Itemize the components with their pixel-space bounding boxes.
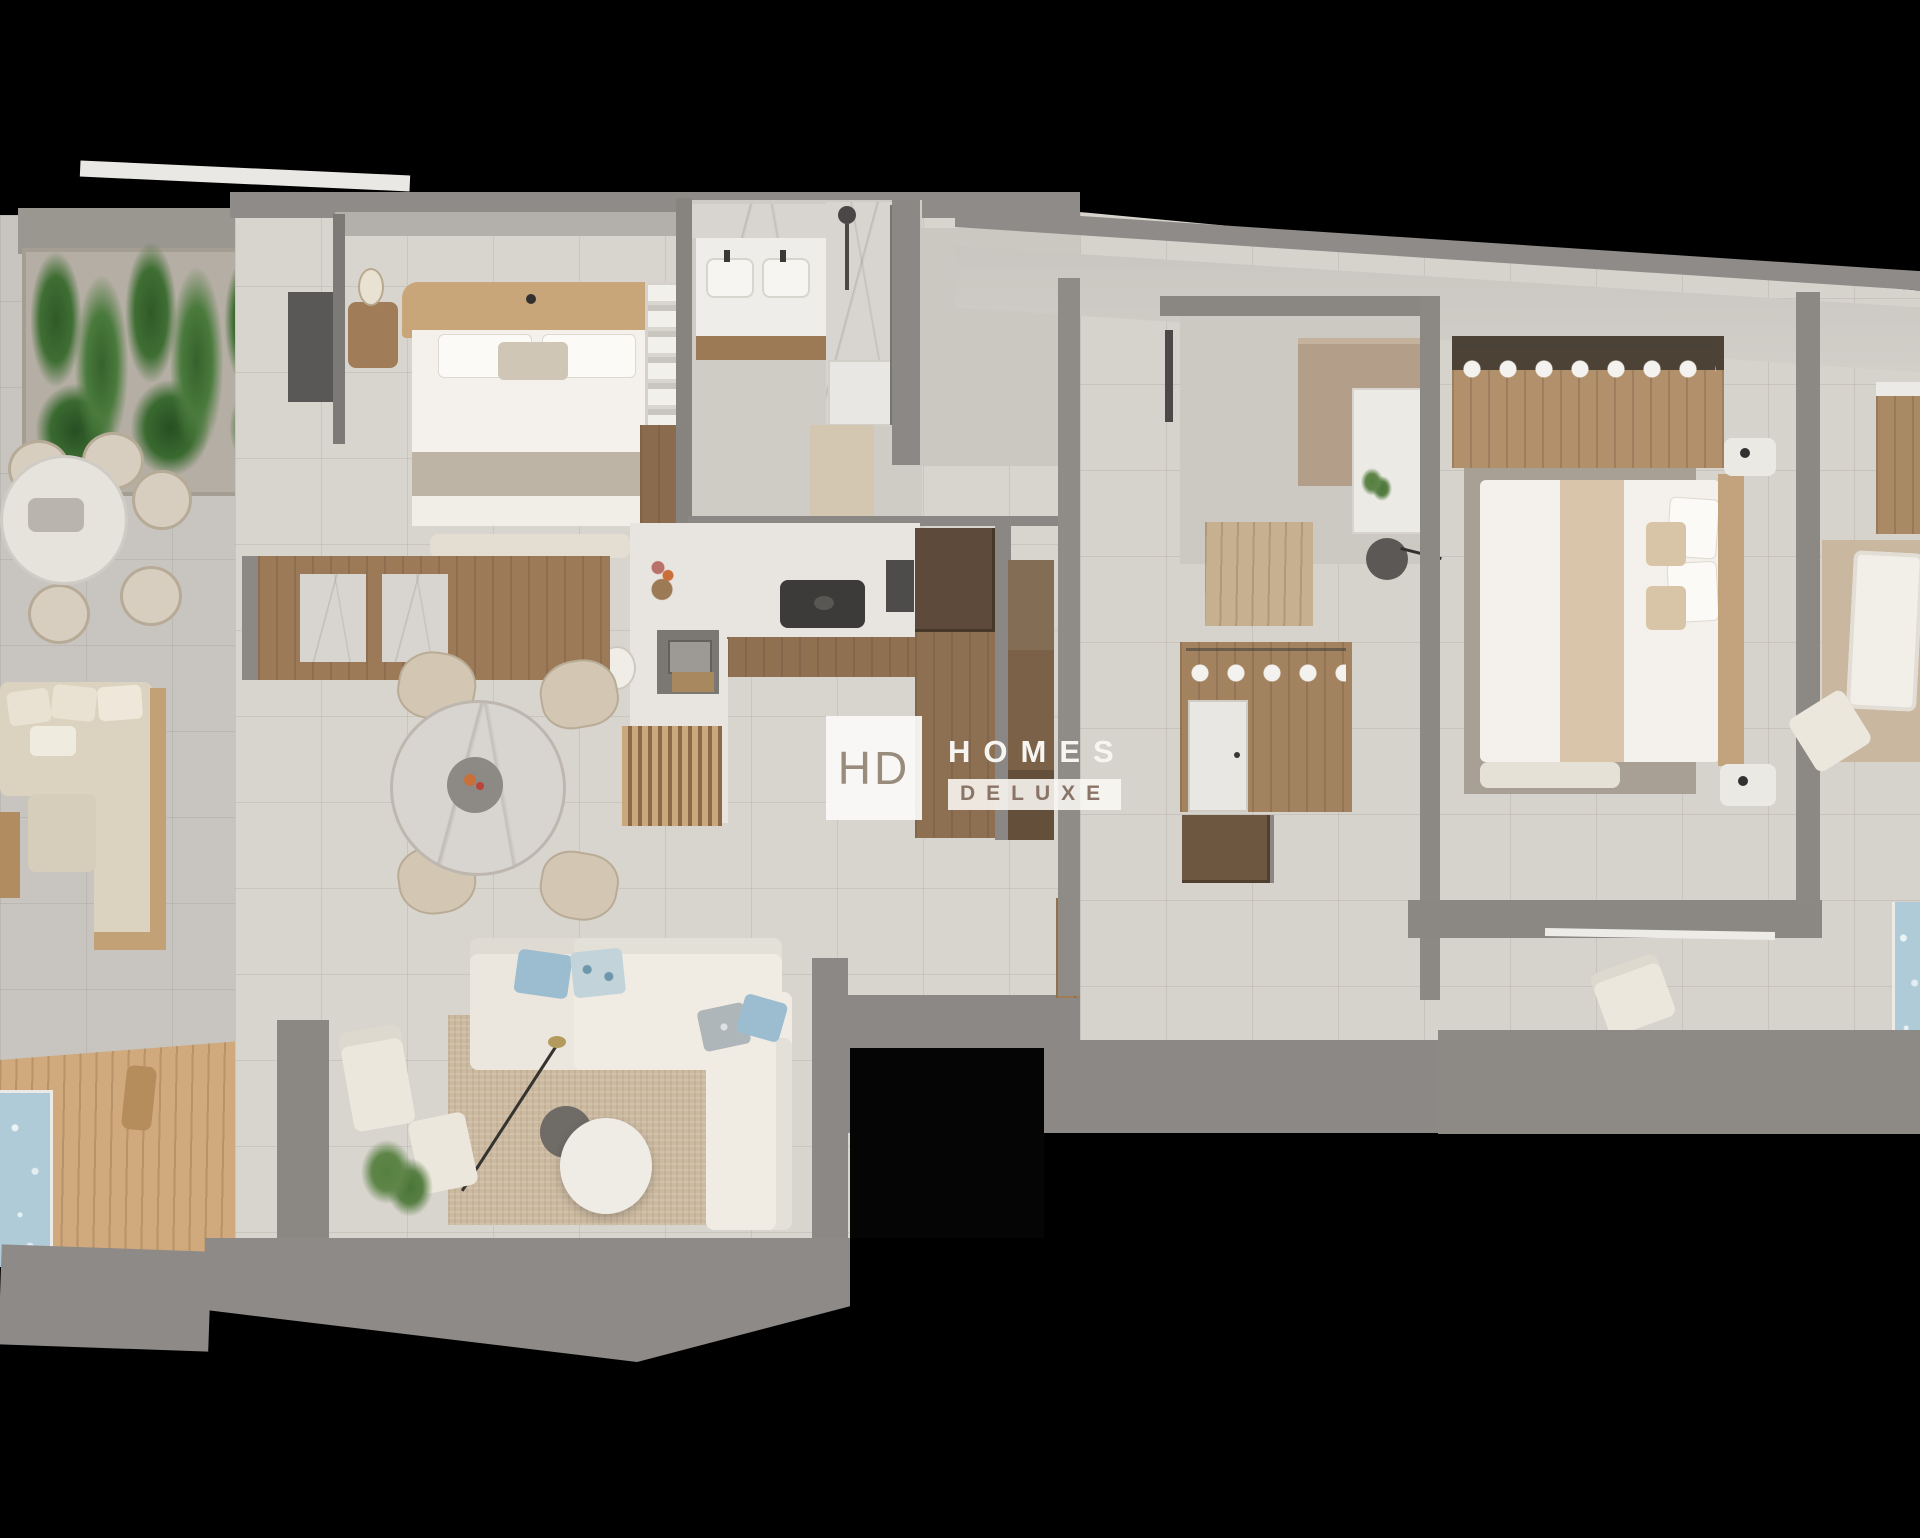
north-wall-face xyxy=(335,212,680,236)
logo-monogram-badge: HD xyxy=(826,716,922,820)
logo-monogram: HD xyxy=(838,741,910,795)
floor-lamp-shade xyxy=(548,1036,566,1048)
sideboard-art-2 xyxy=(382,574,448,662)
island-slat-front xyxy=(622,726,722,826)
bathroom1-backsplash xyxy=(692,204,826,238)
watermark-logo: HD HOMES DELUXE xyxy=(826,716,1127,820)
outdoor-cabinet-top xyxy=(1876,382,1920,396)
bed2-cushion-1 xyxy=(1646,522,1686,566)
porch-west-wall xyxy=(812,958,848,1238)
outdoor-sofa-chaise xyxy=(28,794,96,872)
floorplan-render: HD HOMES DELUXE xyxy=(0,0,1920,1538)
terrace2-daybed xyxy=(1846,550,1920,711)
south-wall-wedge xyxy=(0,1244,212,1351)
outdoor-table-tray xyxy=(28,498,84,532)
dining-table-center xyxy=(447,757,503,813)
south-wall-band xyxy=(205,1238,850,1362)
bath2-door-jamb-1 xyxy=(1165,330,1173,422)
sofa-pillow-blue xyxy=(513,948,573,999)
vanity-plant xyxy=(1356,462,1396,506)
bed2-lamp-2 xyxy=(1738,776,1748,786)
outdoor-chair-4 xyxy=(120,566,182,626)
vanity-wood-base xyxy=(696,336,826,360)
coffee-machine xyxy=(886,560,914,612)
bed2-throw xyxy=(1560,480,1624,762)
counter-vase-flowers xyxy=(642,552,682,604)
bed1-blanket xyxy=(412,452,654,496)
closet-hanging-clothes xyxy=(1186,648,1346,703)
outdoor-cabinet xyxy=(1876,388,1920,534)
kitchen-wood-cabinets xyxy=(727,637,917,677)
pool xyxy=(0,1090,53,1267)
coffee-table xyxy=(560,1118,652,1214)
outdoor-sofa-wood-trim xyxy=(150,688,166,950)
vanity-faucet-right xyxy=(780,250,786,262)
bathroom2-wood-floor xyxy=(1205,522,1313,626)
logo-line2: DELUXE xyxy=(948,779,1121,810)
closet-door-handle xyxy=(1234,752,1240,758)
table-lamp xyxy=(358,268,384,306)
closet-storage-boxes xyxy=(1182,815,1274,883)
shower-pipe xyxy=(845,224,849,290)
shower-tray xyxy=(828,360,892,426)
outdoor-chair-5 xyxy=(28,584,90,644)
bath-runner-rug xyxy=(810,425,874,530)
outdoor-sofa-pillow-2 xyxy=(50,684,97,722)
sofa-pillow-pattern xyxy=(570,947,627,998)
outdoor-chair-3 xyxy=(132,470,192,530)
outdoor-sofa-wood-base xyxy=(94,932,166,950)
bedroom2-hanging-clothes xyxy=(1458,344,1716,403)
logo-wordmark: HOMES DELUXE xyxy=(948,716,1127,810)
pendant-lamp-bed1 xyxy=(526,294,536,304)
bed1-foot xyxy=(412,496,654,526)
vanity-sink-right xyxy=(762,258,810,298)
fruit-bowl xyxy=(464,774,476,786)
terrace2-east-wall xyxy=(1796,292,1820,904)
outdoor-sofa-pillow-3 xyxy=(97,685,143,722)
bed2-nightstand-1 xyxy=(1724,438,1776,476)
hall-west-wall xyxy=(1058,278,1080,996)
bed2-lamp-1 xyxy=(1740,448,1750,458)
vanity-sink-left xyxy=(706,258,754,298)
sideboard-art-1 xyxy=(300,574,366,662)
bathroom2-vanity xyxy=(1352,388,1426,534)
outdoor-side-table xyxy=(0,812,20,898)
bed-bath-divider-wall xyxy=(676,198,692,532)
vanity-faucet-left xyxy=(724,250,730,262)
bed1-cushion xyxy=(498,342,568,380)
bathroom1-east-wall xyxy=(892,200,920,465)
bed2-nightstand-2 xyxy=(1720,764,1776,806)
bath2-north-wall xyxy=(1160,296,1422,316)
sofa-return xyxy=(706,1038,792,1230)
bed2-bench xyxy=(1480,762,1620,788)
kitchen-sink xyxy=(668,640,712,674)
terrace-parapet-edge xyxy=(80,161,410,192)
nightstand xyxy=(348,302,398,368)
void-below-hall xyxy=(1044,1133,1462,1243)
pendant-lamp-bath2 xyxy=(1366,538,1408,580)
shower-head xyxy=(838,206,856,224)
logo-line1: HOMES xyxy=(948,734,1127,770)
bed1-bench xyxy=(430,534,630,558)
bed2-headboard xyxy=(1718,474,1744,766)
outdoor-sofa-pillow-4 xyxy=(30,726,76,756)
kitchen-oven-drawer xyxy=(672,672,714,692)
bedroom2-west-wall xyxy=(1420,296,1440,1000)
porch-void xyxy=(850,1048,1044,1238)
living-plant xyxy=(350,1126,442,1228)
bed2-cushion-2 xyxy=(1646,586,1686,630)
living-west-wall xyxy=(277,1020,329,1238)
bedroom1-west-wall xyxy=(333,214,345,444)
terrace2-south-wall xyxy=(1438,1030,1920,1134)
bedroom1-tv-panel xyxy=(288,292,333,402)
pantry-upper xyxy=(915,528,995,632)
outdoor-sofa-pillow-1 xyxy=(6,687,52,727)
cooktop-pot xyxy=(814,596,834,610)
